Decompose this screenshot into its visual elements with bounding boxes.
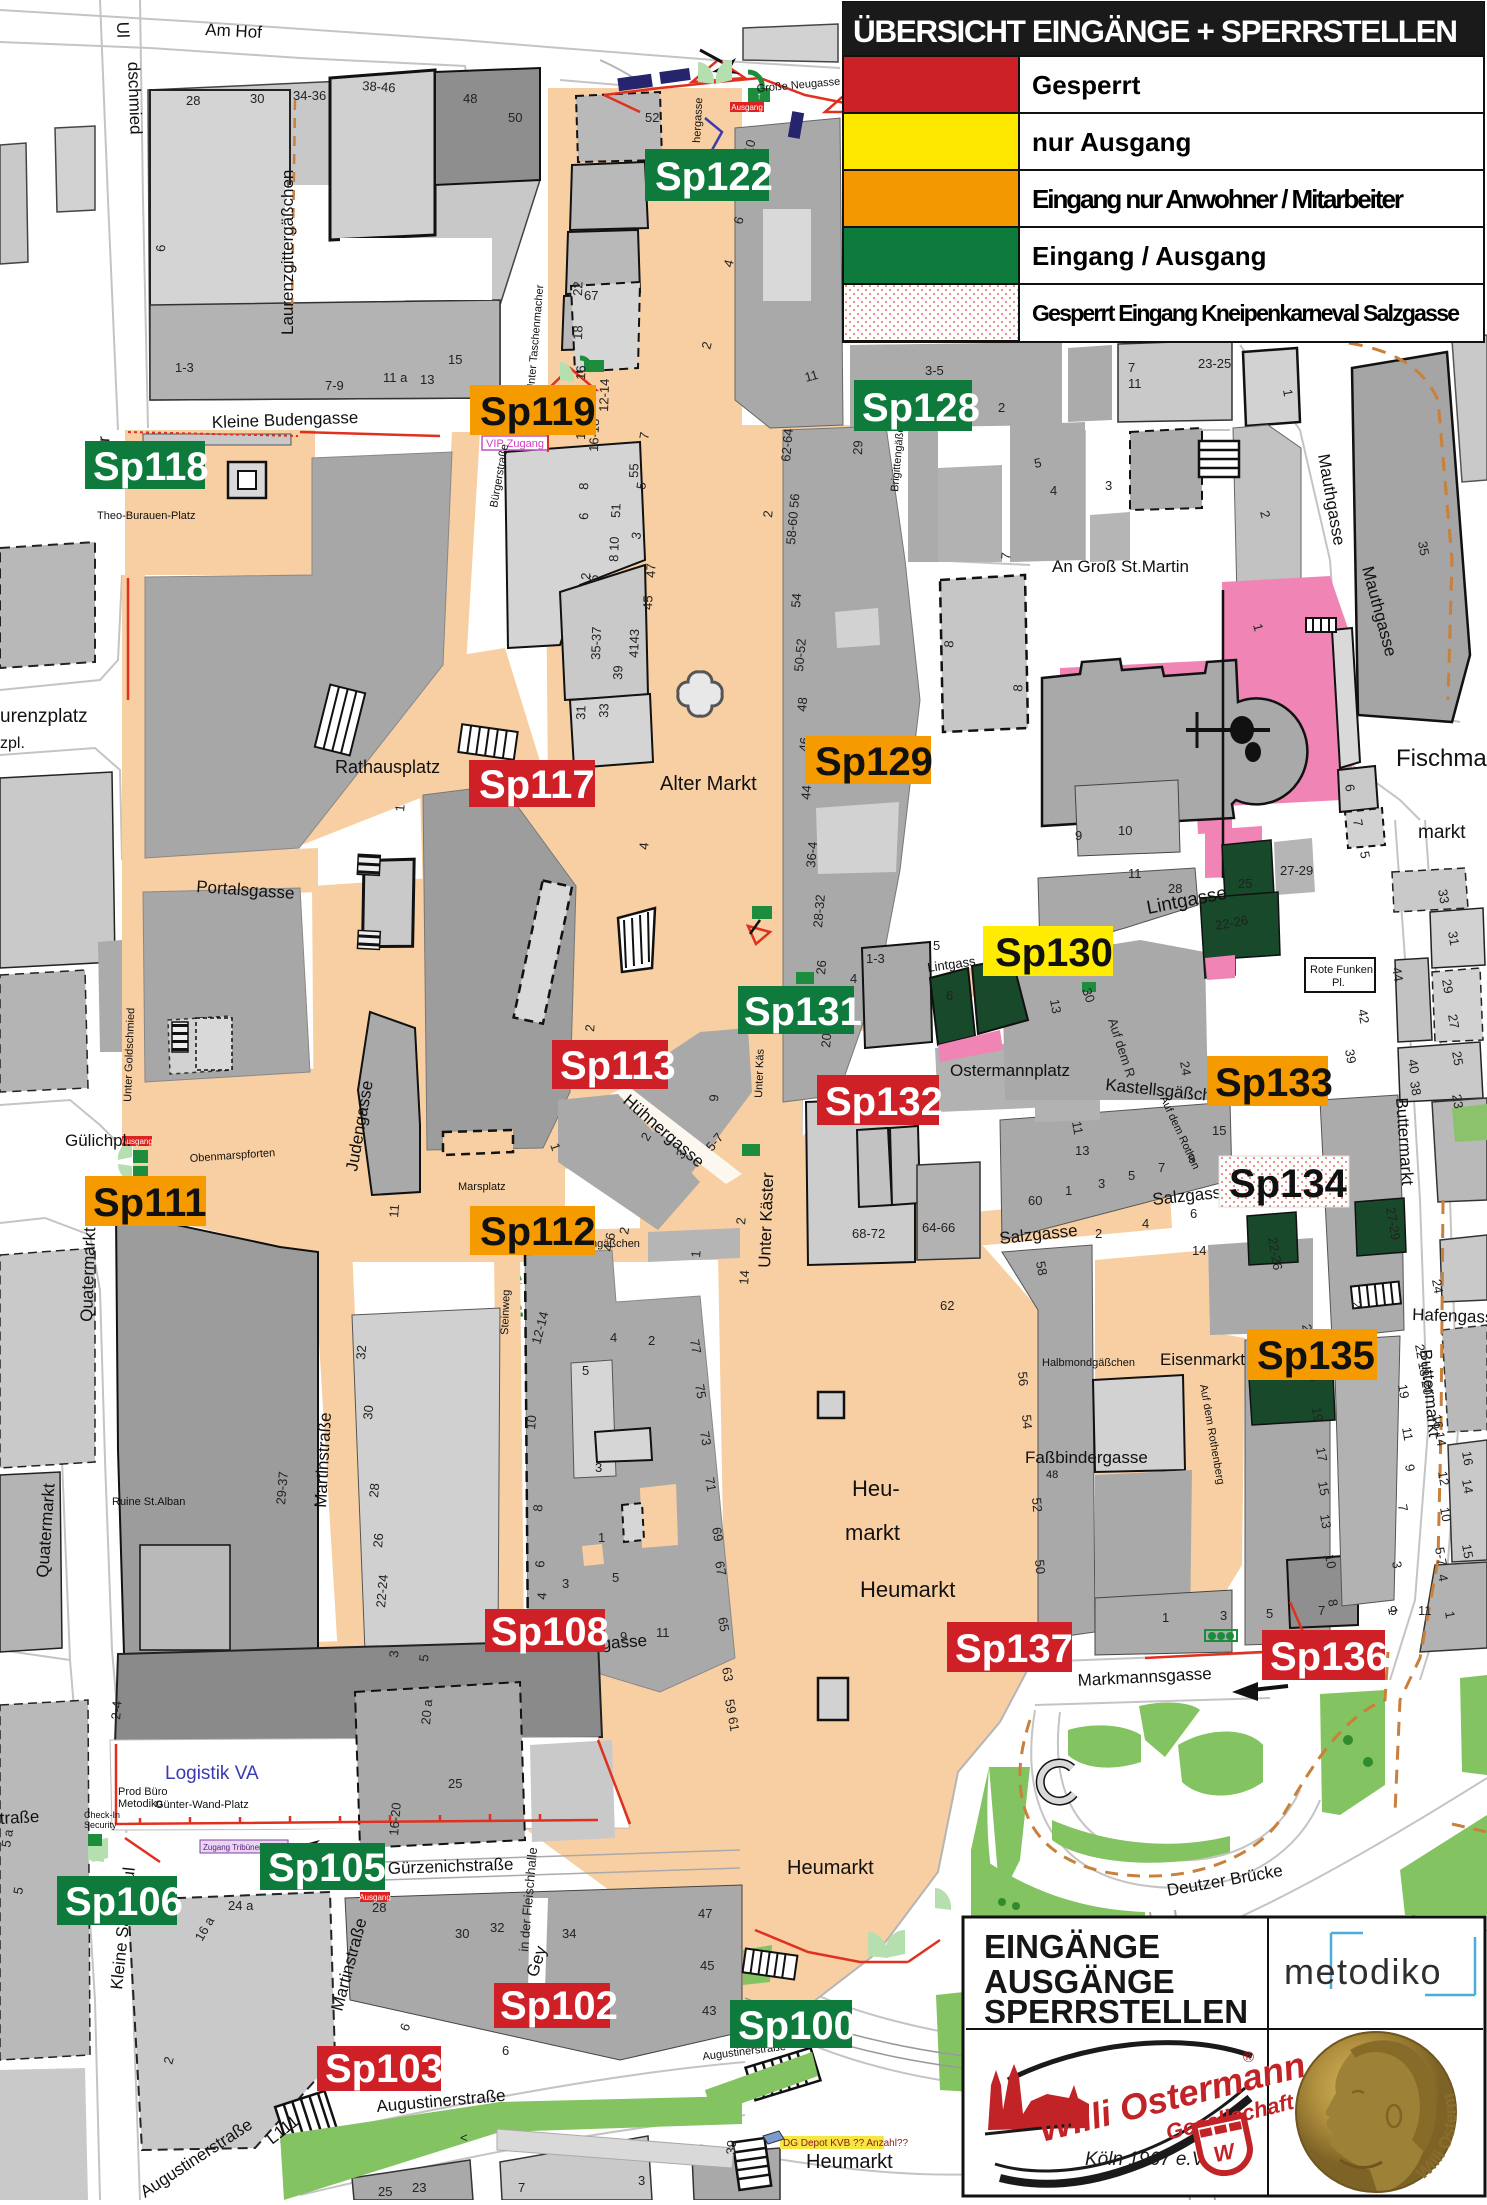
svg-text:4: 4 xyxy=(1142,1216,1149,1231)
svg-text:<: < xyxy=(460,2130,468,2145)
svg-text:28: 28 xyxy=(366,1483,382,1499)
svg-text:Sp131: Sp131 xyxy=(744,990,862,1034)
svg-text:30: 30 xyxy=(250,91,264,106)
svg-text:SPERRSTELLEN: SPERRSTELLEN xyxy=(984,1993,1248,2030)
svg-text:14: 14 xyxy=(1459,1478,1476,1495)
svg-text:Sp112: Sp112 xyxy=(480,1210,596,1254)
svg-text:44: 44 xyxy=(798,785,814,801)
svg-text:48: 48 xyxy=(1046,1469,1058,1481)
svg-text:markt: markt xyxy=(845,1520,900,1545)
svg-text:19: 19 xyxy=(1395,1383,1412,1400)
svg-text:58: 58 xyxy=(1033,1260,1050,1277)
svg-text:Laurenzgittergäßchen: Laurenzgittergäßchen xyxy=(278,170,297,335)
svg-text:Eingang / Ausgang: Eingang / Ausgang xyxy=(1032,241,1266,271)
svg-text:11: 11 xyxy=(1128,376,1142,391)
svg-text:1-3: 1-3 xyxy=(866,951,885,966)
svg-text:markt: markt xyxy=(1418,822,1466,843)
svg-text:29: 29 xyxy=(850,440,865,455)
svg-text:2: 2 xyxy=(998,400,1005,415)
svg-text:Gesperrt: Gesperrt xyxy=(1032,70,1141,100)
svg-text:52: 52 xyxy=(1029,1497,1045,1513)
svg-text:Sp128: Sp128 xyxy=(862,386,980,430)
svg-text:33: 33 xyxy=(596,703,611,718)
svg-text:Prod Büro: Prod Büro xyxy=(118,1786,168,1798)
svg-text:15: 15 xyxy=(1212,1123,1226,1138)
svg-text:68-72: 68-72 xyxy=(852,1226,885,1241)
svg-text:Günter-Wand-Platz: Günter-Wand-Platz xyxy=(155,1799,249,1811)
svg-text:27: 27 xyxy=(1445,1013,1462,1030)
svg-text:33: 33 xyxy=(1435,888,1452,905)
svg-text:1-3: 1-3 xyxy=(175,360,194,375)
svg-text:Gesperrt Eingang Kneipenkarnev: Gesperrt Eingang Kneipenkarneval Salzgas… xyxy=(1032,300,1460,326)
svg-text:10: 10 xyxy=(523,1415,539,1431)
svg-text:18: 18 xyxy=(570,325,585,340)
svg-text:23-25: 23-25 xyxy=(1198,356,1231,371)
svg-text:Sp122: Sp122 xyxy=(655,155,773,199)
svg-text:15: 15 xyxy=(1315,1480,1332,1497)
svg-text:12: 12 xyxy=(1435,1470,1452,1487)
svg-text:8: 8 xyxy=(1010,684,1026,693)
svg-text:25: 25 xyxy=(378,2184,392,2199)
svg-text:56: 56 xyxy=(1015,1371,1031,1387)
svg-text:64-66: 64-66 xyxy=(922,1220,955,1235)
svg-text:26: 26 xyxy=(813,960,829,976)
svg-text:7-9: 7-9 xyxy=(325,378,344,393)
svg-text:20 a: 20 a xyxy=(418,1698,435,1725)
svg-text:45: 45 xyxy=(700,1958,714,1973)
svg-text:23: 23 xyxy=(1449,1093,1466,1110)
svg-text:11: 11 xyxy=(386,1204,402,1219)
svg-text:11: 11 xyxy=(1069,1120,1086,1136)
svg-text:50: 50 xyxy=(508,110,522,125)
svg-text:43: 43 xyxy=(702,2003,716,2018)
svg-text:Security: Security xyxy=(84,1820,117,1830)
svg-text:Sp111: Sp111 xyxy=(93,1181,206,1225)
svg-text:15: 15 xyxy=(448,352,462,367)
svg-text:An Groß St.Martin: An Groß St.Martin xyxy=(1052,557,1189,576)
svg-text:Ostermannplatz: Ostermannplatz xyxy=(950,1061,1070,1080)
svg-text:29: 29 xyxy=(1439,978,1456,995)
svg-text:Ruine St.Alban: Ruine St.Alban xyxy=(112,1496,185,1508)
svg-text:7: 7 xyxy=(1318,1603,1325,1618)
svg-text:®: ® xyxy=(1243,2049,1254,2066)
svg-text:3: 3 xyxy=(386,1650,402,1659)
svg-text:Pl.: Pl. xyxy=(1332,977,1345,989)
svg-text:42: 42 xyxy=(1355,1008,1372,1025)
svg-text:6: 6 xyxy=(153,244,168,252)
svg-text:Sp113: Sp113 xyxy=(560,1044,676,1088)
svg-text:16: 16 xyxy=(1459,1450,1476,1467)
svg-text:60: 60 xyxy=(1028,1193,1042,1208)
svg-text:Unter Käs: Unter Käs xyxy=(753,1048,767,1098)
svg-text:39: 39 xyxy=(610,665,625,680)
svg-text:10: 10 xyxy=(1322,1553,1339,1570)
svg-text:Sp106: Sp106 xyxy=(65,1880,183,1924)
svg-text:28: 28 xyxy=(1168,881,1182,896)
svg-text:Sp130: Sp130 xyxy=(995,931,1113,975)
svg-text:15: 15 xyxy=(1459,1543,1476,1560)
svg-text:50-52: 50-52 xyxy=(791,638,809,672)
svg-text:Gülichpl.: Gülichpl. xyxy=(65,1131,131,1150)
svg-text:7: 7 xyxy=(1128,360,1135,375)
svg-text:6: 6 xyxy=(1190,1206,1197,1221)
svg-text:4: 4 xyxy=(636,842,652,851)
svg-text:47: 47 xyxy=(698,1906,712,1921)
svg-text:19: 19 xyxy=(1309,1406,1326,1423)
svg-text:47: 47 xyxy=(643,563,658,578)
svg-text:36-4: 36-4 xyxy=(803,841,820,868)
svg-text:62-64: 62-64 xyxy=(778,428,796,462)
svg-text:metodiko: metodiko xyxy=(1284,1951,1442,1992)
svg-text:Faßbindergasse: Faßbindergasse xyxy=(1025,1448,1148,1467)
svg-text:Logistik VA: Logistik VA xyxy=(165,1763,259,1784)
svg-text:75: 75 xyxy=(692,1383,709,1400)
svg-text:DG Depot KVB ?? Anzahl??: DG Depot KVB ?? Anzahl?? xyxy=(783,2138,909,2149)
svg-text:26: 26 xyxy=(370,1533,386,1549)
svg-text:8: 8 xyxy=(576,482,591,490)
svg-text:3-5: 3-5 xyxy=(925,363,944,378)
svg-text:11: 11 xyxy=(656,1625,670,1640)
svg-text:Ausgang: Ausgang xyxy=(731,103,763,112)
svg-text:27-29: 27-29 xyxy=(1280,863,1313,878)
svg-text:3: 3 xyxy=(1105,478,1112,493)
svg-text:35: 35 xyxy=(1415,540,1432,557)
svg-text:EINGÄNGE: EINGÄNGE xyxy=(984,1928,1160,1965)
svg-text:4: 4 xyxy=(1050,483,1057,498)
svg-text:14: 14 xyxy=(1192,1243,1206,1258)
svg-text:38-46: 38-46 xyxy=(362,78,396,95)
svg-text:9: 9 xyxy=(1390,1603,1397,1618)
svg-text:13: 13 xyxy=(1047,998,1064,1015)
svg-text:52: 52 xyxy=(645,110,659,125)
svg-text:Sp133: Sp133 xyxy=(1215,1061,1333,1105)
svg-text:7: 7 xyxy=(518,2180,525,2195)
svg-text:Ul: Ul xyxy=(113,21,133,38)
svg-text:6: 6 xyxy=(946,988,953,1003)
svg-text:39: 39 xyxy=(723,2140,739,2156)
svg-text:Hafengass: Hafengass xyxy=(1412,1305,1487,1327)
svg-text:77: 77 xyxy=(687,1338,704,1355)
svg-text:31: 31 xyxy=(1445,930,1462,947)
svg-text:48: 48 xyxy=(794,697,810,713)
svg-text:VIP Zugang: VIP Zugang xyxy=(486,438,544,450)
svg-text:63: 63 xyxy=(719,1666,736,1683)
svg-text:48: 48 xyxy=(463,91,477,106)
svg-text:Heumarkt: Heumarkt xyxy=(860,1577,955,1602)
svg-text:Quatermarkt: Quatermarkt xyxy=(77,1227,99,1322)
svg-text:10: 10 xyxy=(1437,1506,1454,1523)
svg-text:1: 1 xyxy=(1065,1183,1072,1198)
svg-text:24: 24 xyxy=(1429,1278,1446,1295)
svg-text:Sp100: Sp100 xyxy=(738,2004,856,2048)
svg-text:25: 25 xyxy=(1238,876,1252,891)
svg-text:Sp102: Sp102 xyxy=(500,1984,618,2028)
svg-text:24: 24 xyxy=(1177,1060,1194,1077)
svg-text:3: 3 xyxy=(595,1460,602,1475)
svg-text:Köln 1967 e.V.: Köln 1967 e.V. xyxy=(1085,2149,1208,2170)
svg-text:7: 7 xyxy=(998,552,1014,561)
svg-text:12-14: 12-14 xyxy=(596,378,612,412)
svg-text:Unter Käster: Unter Käster xyxy=(755,1172,777,1268)
svg-text:62: 62 xyxy=(940,1298,954,1313)
svg-text:Sp117: Sp117 xyxy=(479,763,595,807)
svg-text:dschmied: dschmied xyxy=(124,61,146,134)
svg-text:2: 2 xyxy=(648,1333,655,1348)
svg-text:11: 11 xyxy=(1128,866,1142,881)
svg-text:54: 54 xyxy=(788,593,804,609)
svg-text:Theo-Burauen-Platz: Theo-Burauen-Platz xyxy=(97,510,195,522)
svg-text:14: 14 xyxy=(736,1270,752,1286)
svg-text:8: 8 xyxy=(530,1504,546,1513)
svg-text:Sp118: Sp118 xyxy=(93,445,209,489)
svg-text:6: 6 xyxy=(586,574,601,582)
svg-text:Alter Markt: Alter Markt xyxy=(660,773,757,795)
svg-text:Sp129: Sp129 xyxy=(815,740,933,784)
svg-text:3: 3 xyxy=(638,2173,645,2188)
svg-text:55: 55 xyxy=(626,463,641,478)
svg-text:13: 13 xyxy=(420,372,434,387)
svg-text:9: 9 xyxy=(1075,828,1082,843)
svg-text:22-24: 22-24 xyxy=(373,1574,391,1608)
svg-text:Heu-: Heu- xyxy=(852,1476,900,1501)
svg-text:4: 4 xyxy=(850,971,857,986)
svg-text:Heumarkt: Heumarkt xyxy=(806,2151,893,2173)
svg-text:1: 1 xyxy=(1162,1610,1169,1625)
svg-text:34: 34 xyxy=(562,1926,576,1941)
svg-text:71: 71 xyxy=(702,1476,719,1493)
svg-text:Sp103: Sp103 xyxy=(325,2047,443,2091)
svg-text:3: 3 xyxy=(562,1576,569,1591)
svg-text:urenzplatz: urenzplatz xyxy=(0,706,88,727)
svg-text:2: 2 xyxy=(1095,1226,1102,1241)
svg-text:28-32: 28-32 xyxy=(810,894,828,928)
svg-text:30: 30 xyxy=(360,1405,376,1421)
svg-text:nur Ausgang: nur Ausgang xyxy=(1032,127,1191,157)
svg-text:Sp132: Sp132 xyxy=(825,1080,943,1124)
svg-text:2: 2 xyxy=(760,510,776,519)
svg-text:3: 3 xyxy=(1098,1176,1105,1191)
svg-text:Sp105: Sp105 xyxy=(268,1846,386,1890)
svg-text:Heumarkt: Heumarkt xyxy=(787,1857,874,1879)
svg-text:Rote Funken: Rote Funken xyxy=(1310,964,1373,976)
svg-text:24 a: 24 a xyxy=(228,1898,254,1913)
svg-text:29-37: 29-37 xyxy=(273,1471,291,1505)
svg-text:3: 3 xyxy=(1220,1608,1227,1623)
svg-text:5: 5 xyxy=(933,938,940,953)
svg-text:5: 5 xyxy=(1128,1168,1135,1183)
svg-text:51: 51 xyxy=(608,503,623,518)
svg-text:16: 16 xyxy=(573,365,588,380)
svg-text:38: 38 xyxy=(1407,1080,1424,1097)
svg-text:23: 23 xyxy=(412,2180,426,2195)
svg-text:2-4: 2-4 xyxy=(108,1700,125,1720)
svg-text:2: 2 xyxy=(582,1024,598,1033)
svg-text:Am Hof: Am Hof xyxy=(205,20,263,42)
svg-text:16-20: 16-20 xyxy=(386,1802,404,1836)
svg-text:Sp135: Sp135 xyxy=(1257,1334,1375,1378)
svg-text:10: 10 xyxy=(1118,823,1132,838)
svg-text:7: 7 xyxy=(1158,1160,1165,1175)
svg-text:Eisenmarkt: Eisenmarkt xyxy=(1160,1350,1245,1369)
svg-text:67: 67 xyxy=(712,1560,729,1577)
svg-text:Check-In: Check-In xyxy=(84,1810,120,1820)
svg-text:9: 9 xyxy=(620,1629,627,1644)
svg-text:1: 1 xyxy=(688,1250,704,1259)
svg-text:ÜBERSICHT EINGÄNGE + SPERRSTEL: ÜBERSICHT EINGÄNGE + SPERRSTELLEN xyxy=(853,13,1458,49)
svg-text:4: 4 xyxy=(610,1330,617,1345)
svg-text:67: 67 xyxy=(584,288,598,303)
svg-text:Sp119: Sp119 xyxy=(480,390,596,434)
svg-text:Fischmar: Fischmar xyxy=(1396,745,1487,772)
svg-text:28: 28 xyxy=(186,93,200,108)
svg-text:Marsplatz: Marsplatz xyxy=(458,1181,506,1193)
svg-text:8: 8 xyxy=(941,640,957,649)
svg-text:6: 6 xyxy=(576,512,591,520)
svg-text:25: 25 xyxy=(1449,1050,1466,1067)
svg-text:40: 40 xyxy=(1405,1058,1422,1075)
svg-text:17: 17 xyxy=(1313,1446,1330,1463)
svg-text:8 10: 8 10 xyxy=(606,536,622,562)
svg-text:31: 31 xyxy=(573,705,588,720)
svg-text:11: 11 xyxy=(1418,1603,1432,1618)
svg-text:Halbmondgäßchen: Halbmondgäßchen xyxy=(1042,1357,1135,1369)
svg-text:Eingang nur Anwohner / Mitarbe: Eingang nur Anwohner / Mitarbeiter xyxy=(1032,184,1404,214)
svg-text:Sp134: Sp134 xyxy=(1229,1162,1348,1206)
svg-text:2: 2 xyxy=(733,1217,749,1226)
svg-text:32: 32 xyxy=(490,1920,504,1935)
svg-text:65: 65 xyxy=(715,1616,732,1633)
svg-text:73: 73 xyxy=(697,1430,714,1447)
svg-text:39: 39 xyxy=(1342,1048,1359,1065)
svg-text:6: 6 xyxy=(532,1560,548,1569)
svg-text:9: 9 xyxy=(706,1094,722,1103)
svg-text:28: 28 xyxy=(372,1900,386,1915)
svg-text:4: 4 xyxy=(534,1592,550,1601)
svg-text:11 a: 11 a xyxy=(383,370,408,385)
svg-text:Sp137: Sp137 xyxy=(955,1627,1073,1671)
svg-text:54: 54 xyxy=(1019,1414,1035,1430)
svg-text:50: 50 xyxy=(1032,1559,1048,1575)
svg-text:25: 25 xyxy=(448,1776,462,1791)
svg-text:6: 6 xyxy=(502,2043,509,2058)
svg-text:Rathausplatz: Rathausplatz xyxy=(335,757,440,777)
svg-text:11: 11 xyxy=(1399,1426,1416,1442)
svg-text:5: 5 xyxy=(612,1570,619,1585)
svg-text:4143: 4143 xyxy=(626,629,642,658)
svg-text:1: 1 xyxy=(598,1530,605,1545)
svg-text:30: 30 xyxy=(455,1926,469,1941)
svg-text:zpl.: zpl. xyxy=(0,735,25,752)
svg-text:hergasse: hergasse xyxy=(691,97,705,143)
svg-text:5: 5 xyxy=(416,1654,432,1663)
svg-text:traße: traße xyxy=(0,1807,40,1828)
svg-text:9: 9 xyxy=(1188,1151,1195,1166)
svg-text:5: 5 xyxy=(1266,1606,1273,1621)
svg-text:5: 5 xyxy=(582,1363,589,1378)
svg-text:34-36: 34-36 xyxy=(293,88,326,103)
svg-text:32: 32 xyxy=(353,1345,369,1361)
svg-text:45: 45 xyxy=(640,595,655,610)
svg-text:44: 44 xyxy=(1389,966,1406,983)
svg-text:Sp108: Sp108 xyxy=(491,1610,609,1654)
svg-text:69: 69 xyxy=(709,1526,726,1543)
svg-text:13: 13 xyxy=(1317,1513,1334,1530)
svg-text:Steinweg: Steinweg xyxy=(499,1289,513,1335)
svg-text:13: 13 xyxy=(1075,1143,1089,1158)
svg-text:1: 1 xyxy=(392,804,408,813)
svg-text:Sp136: Sp136 xyxy=(1270,1635,1388,1679)
svg-text:35-37: 35-37 xyxy=(588,626,604,660)
